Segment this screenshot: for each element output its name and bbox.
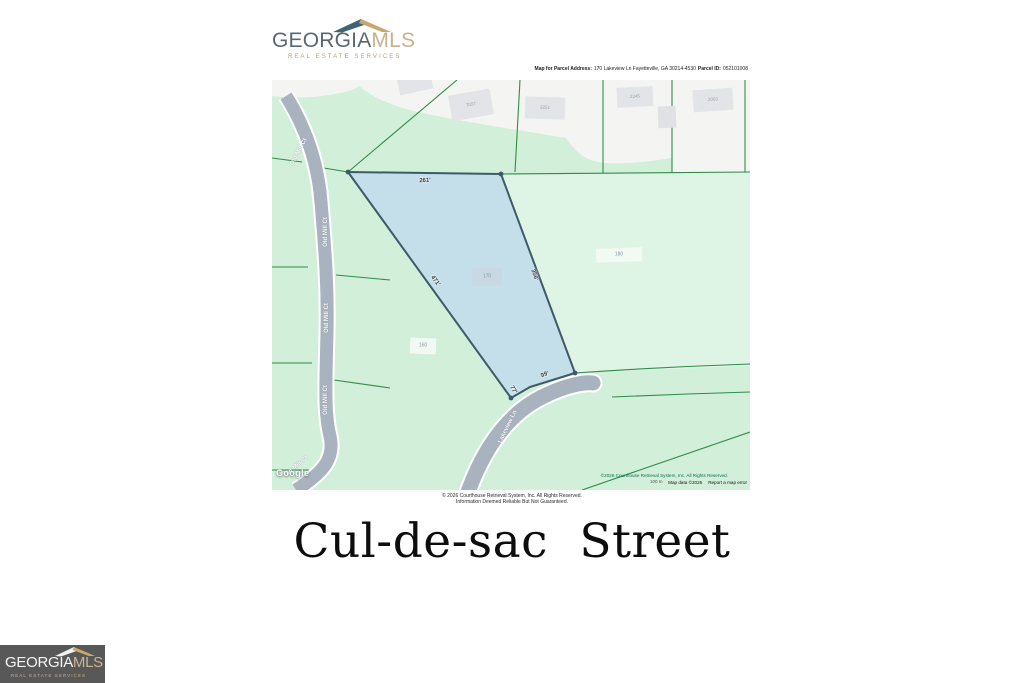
map-canvas[interactable]: 7057 2251 2345 2003 170 160 180 261' 471… bbox=[272, 80, 750, 490]
road-label-old-mill: Old Mill Ct bbox=[323, 385, 329, 415]
lot-number-subject: 170 bbox=[483, 275, 491, 280]
lot-number-east: 180 bbox=[615, 253, 623, 258]
brand-name: GEORGIAMLS bbox=[272, 29, 415, 53]
map-data-credit: Map data ©2026 bbox=[668, 480, 702, 485]
map-credit-line1: ©2026 Courthouse Retrieval System, Inc. … bbox=[601, 473, 728, 478]
building-number: 2003 bbox=[708, 97, 718, 102]
dimension-top: 261' bbox=[419, 178, 431, 184]
badge-brand-tagline: REAL ESTATE SERVICES bbox=[11, 673, 86, 678]
map-shapes bbox=[272, 80, 750, 490]
building-number: 2251 bbox=[540, 106, 550, 111]
lot-number-west: 160 bbox=[419, 344, 427, 349]
badge-brand-primary: GEORGIA bbox=[5, 654, 73, 671]
google-watermark[interactable]: Google bbox=[276, 469, 309, 478]
brand-secondary: MLS bbox=[371, 29, 415, 52]
badge-brand-secondary: MLS bbox=[73, 654, 103, 671]
parcel-id-label: Parcel ID: bbox=[698, 66, 721, 72]
badge-brand-name: GEORGIAMLS bbox=[5, 654, 103, 671]
georgiamls-badge: GEORGIAMLS REAL ESTATE SERVICES bbox=[0, 645, 105, 683]
disclaimer-line2: Information Deemed Reliable But Not Guar… bbox=[0, 499, 1024, 505]
report-map-error-link[interactable]: Report a map error bbox=[708, 480, 747, 485]
brand-tagline: REAL ESTATE SERVICES bbox=[288, 54, 401, 60]
map-scale: 100 m bbox=[650, 479, 663, 484]
building-number: 2345 bbox=[630, 94, 640, 99]
map-credit-line2: Map data ©2026Report a map error bbox=[668, 480, 747, 485]
brand-primary: GEORGIA bbox=[272, 29, 371, 52]
parcel-header: Map for Parcel Address:170 Lakeview Ln F… bbox=[535, 66, 748, 72]
address-value: 170 Lakeview Ln Fayetteville, GA 30214-4… bbox=[594, 66, 696, 72]
road-label-old-mill: Old Mill Ct bbox=[324, 303, 330, 333]
georgiamls-logo: GEORGIAMLS REAL ESTATE SERVICES bbox=[272, 18, 412, 64]
address-label: Map for Parcel Address: bbox=[535, 66, 592, 72]
disclaimer: © 2026 Courthouse Retrieval System, Inc.… bbox=[0, 493, 1024, 505]
listing-image-page: GEORGIAMLS REAL ESTATE SERVICES Map for … bbox=[0, 0, 1024, 683]
parcel-id-value: 052101008 bbox=[723, 66, 748, 72]
caption-title: Cul-de-sac Street bbox=[0, 514, 1024, 569]
road-label-old-mill: Old Mill Ct bbox=[323, 217, 329, 247]
